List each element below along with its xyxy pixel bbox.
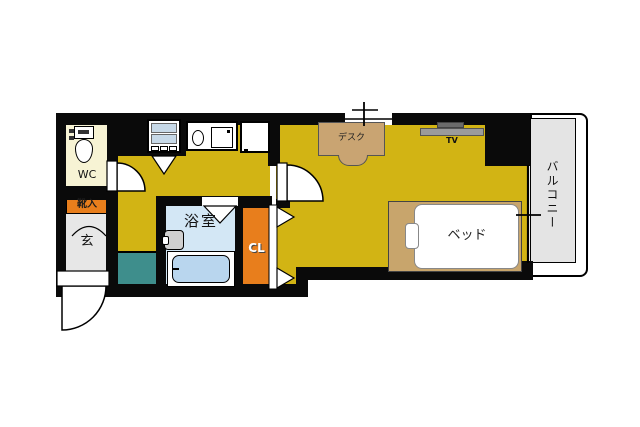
floorplan-canvas: WC 靴入 玄 浴室 CL デスク TV ベッド バルコニー [0, 0, 640, 427]
main-room-door-swing [287, 165, 323, 201]
bed-label: ベッド [424, 229, 510, 242]
entrance-label: 玄 [66, 235, 108, 248]
bathroom-door-opening [202, 197, 238, 206]
entrance-door-leaf [57, 271, 109, 286]
entrance-door-swing [62, 286, 106, 330]
balcony-label: バルコニー [546, 160, 558, 265]
bathroom-label: 浴室 [168, 214, 234, 229]
shoe-storage-label: 靴入 [66, 200, 108, 210]
main-room-door-leaf [277, 163, 287, 201]
tv-label: TV [432, 137, 472, 145]
kitchen-opening-marker [152, 156, 176, 174]
wc-label: WC [70, 169, 104, 180]
closet-door-fold-top [277, 207, 294, 227]
closet-label: CL [243, 242, 270, 254]
closet-door-fold-bottom [277, 268, 294, 288]
wc-door-swing [117, 163, 145, 191]
closet-door-panel [269, 205, 277, 289]
wc-door-leaf [107, 161, 117, 191]
desk-label: デスク [318, 134, 385, 143]
plan-overlay [0, 0, 640, 427]
